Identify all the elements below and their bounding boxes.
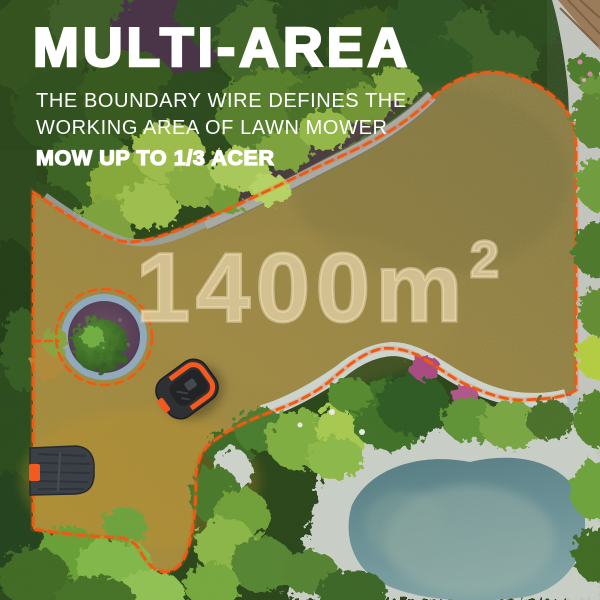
area-superscript: 2: [470, 231, 499, 289]
lawn-area-label: 1400m2: [136, 234, 499, 336]
product-marketing-image: MULTI-AREA THE BOUNDARY WIRE DEFINES THE…: [0, 0, 600, 600]
mow-capacity-badge: MOW UP TO 1/3 ACER: [36, 146, 275, 171]
area-value: 1400m: [136, 233, 468, 342]
headline-subtitle-line2: WORKING AREA OF LAWN MOWER: [36, 117, 388, 140]
headline-title: MULTI-AREA: [33, 20, 411, 75]
headline-subtitle-line1: THE BOUNDARY WIRE DEFINES THE: [36, 90, 407, 113]
